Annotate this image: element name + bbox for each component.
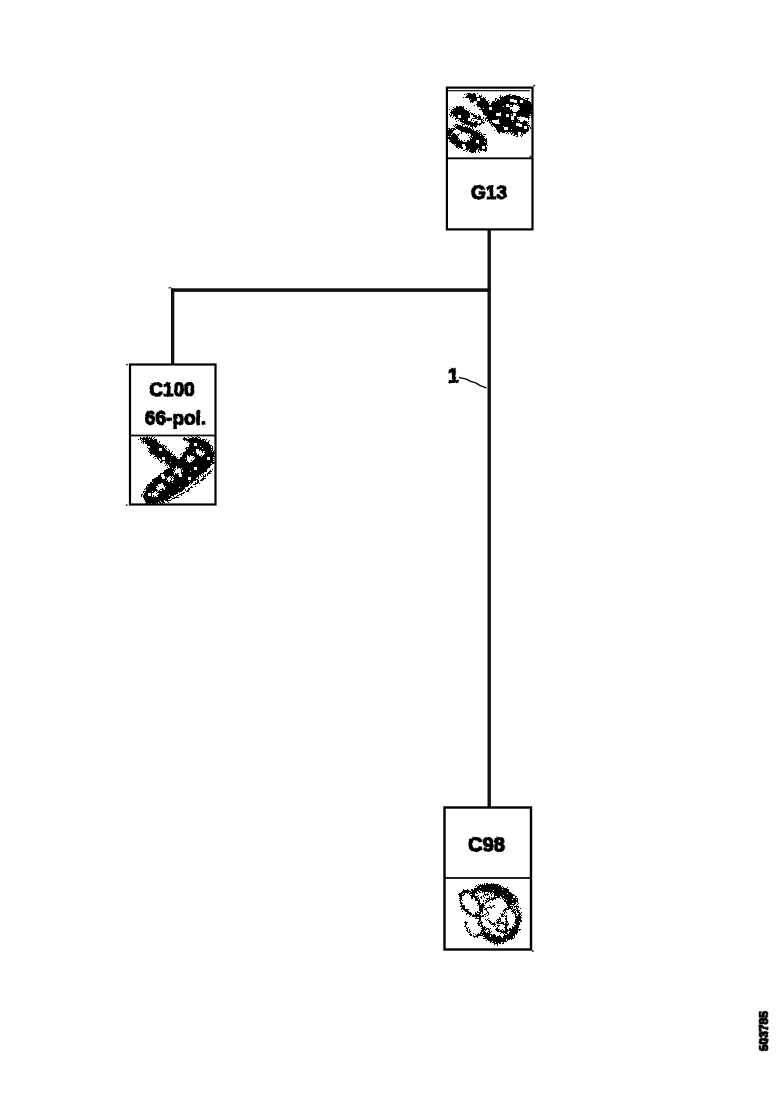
svg-text:C98: C98 — [468, 835, 505, 857]
svg-text:1: 1 — [448, 365, 459, 387]
svg-text:503785: 503785 — [757, 1011, 771, 1051]
svg-text:C100: C100 — [149, 380, 194, 401]
svg-text:66-pol.: 66-pol. — [145, 409, 206, 430]
svg-text:G13: G13 — [471, 183, 507, 204]
